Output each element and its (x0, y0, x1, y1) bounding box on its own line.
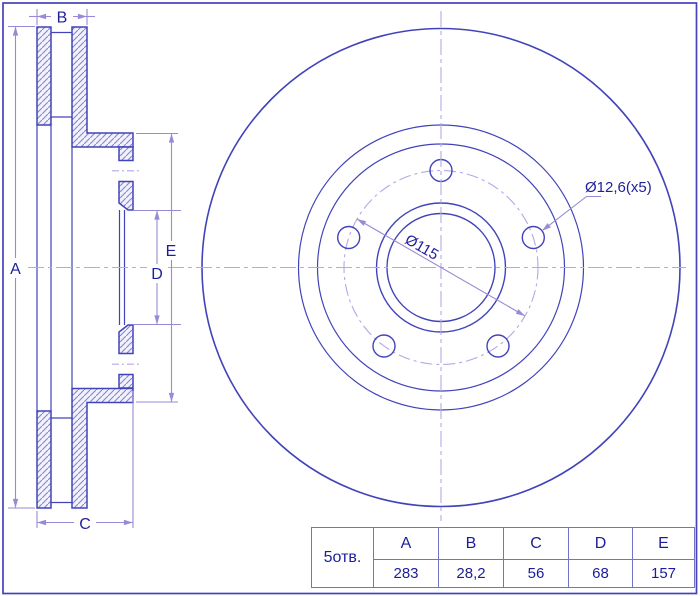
drawing-canvas: A B C D E Ø115 Ø12,6(x5) (0, 0, 700, 596)
table-value-cell: 56 (504, 560, 569, 588)
table-value-cell: 28,2 (439, 560, 504, 588)
spec-table: 5отв. A B C D E 283 28,2 56 68 157 (311, 527, 695, 588)
bolt-holes-label: Ø12,6(x5) (585, 179, 652, 196)
table-header-cell: D (569, 528, 633, 560)
flange-bottom-outer (119, 375, 133, 389)
table-header-cell: C (504, 528, 569, 560)
dim-label-a: A (10, 261, 21, 278)
drawing-frame (3, 3, 697, 594)
table-value-cell: 157 (633, 560, 695, 588)
dimensions (8, 9, 601, 528)
outboard-plate-bottom (37, 411, 51, 508)
brake-disc-drawing: A B C D E Ø115 Ø12,6(x5) 5отв. A B C D E… (0, 0, 700, 596)
dim-label-d: D (151, 266, 163, 283)
dim-label-b: B (57, 10, 68, 27)
table-value-cell: 283 (374, 560, 439, 588)
dimension-labels: A B C D E Ø115 Ø12,6(x5) (7, 8, 652, 533)
dim-label-c: C (79, 516, 91, 533)
flange-top-inner (119, 182, 133, 211)
bolt-hole-leader (542, 197, 601, 231)
inboard-plate-bottom (72, 389, 133, 509)
flange-top-outer (119, 147, 133, 161)
flange-bottom-inner (119, 325, 133, 354)
bolt-hole (487, 335, 509, 357)
inboard-plate-top (72, 27, 133, 147)
centerlines (28, 11, 686, 521)
table-value-cell: 68 (569, 560, 633, 588)
table-header-cell: B (439, 528, 504, 560)
pcd-dimension-label: Ø115 (402, 231, 441, 264)
table-header-cell: A (374, 528, 439, 560)
holes-count-cell: 5отв. (312, 528, 374, 588)
bolt-hole (338, 227, 360, 249)
dim-label-e: E (166, 243, 177, 260)
outboard-plate-top (37, 27, 51, 125)
table-header-cell: E (633, 528, 695, 560)
